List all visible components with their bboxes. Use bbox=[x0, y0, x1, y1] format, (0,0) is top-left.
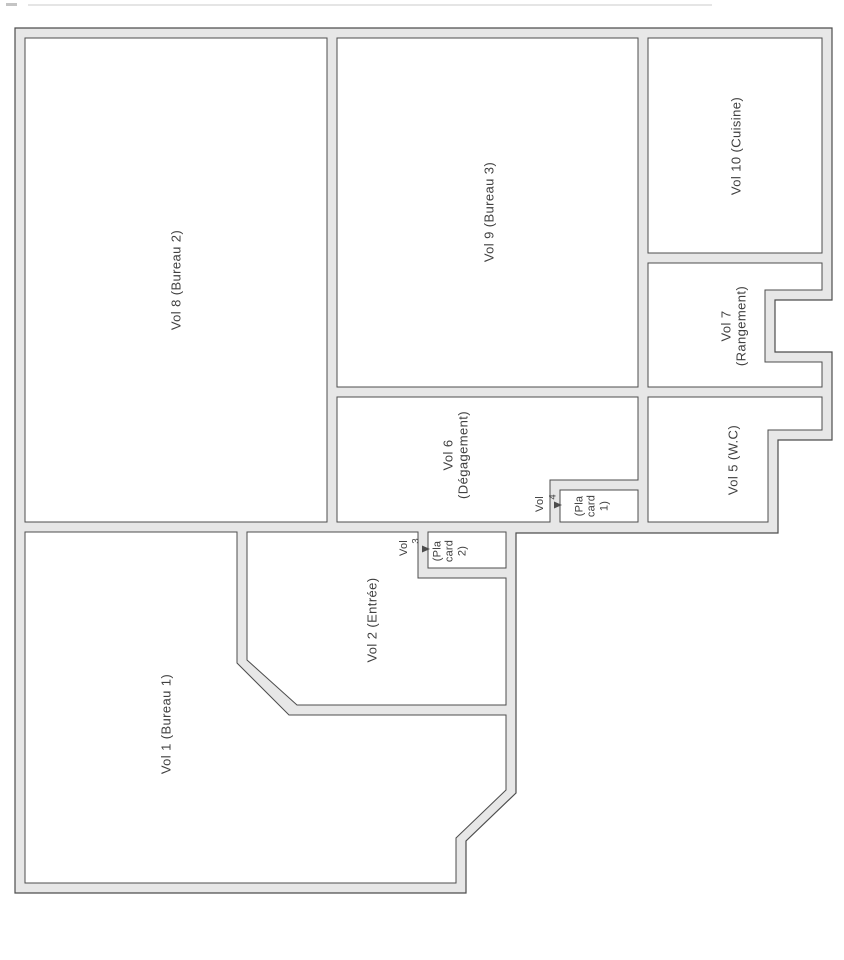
vol3-callout-number: 3 bbox=[410, 538, 421, 543]
room-label-vol1: Vol 1 (Bureau 1) bbox=[158, 674, 173, 774]
placard1-box-label: (Pla card 1) bbox=[574, 495, 611, 517]
room-label-vol9: Vol 9 (Bureau 3) bbox=[481, 162, 496, 262]
vol4-callout-prefix: Vol bbox=[534, 496, 546, 512]
floor-plan-drawing bbox=[0, 0, 844, 960]
floor-plan-canvas: Vol 8 (Bureau 2) Vol 9 (Bureau 3) Vol 10… bbox=[0, 0, 844, 960]
room-label-vol6: Vol 6 (Dégagement) bbox=[441, 411, 472, 499]
vol4-callout-number: 4 bbox=[547, 494, 558, 499]
room-label-vol7: Vol 7 (Rangement) bbox=[719, 271, 750, 381]
placard2-box-label: (Pla card 2) bbox=[432, 540, 469, 562]
vol3-callout-prefix: Vol bbox=[398, 540, 410, 556]
room-label-vol2: Vol 2 (Entrée) bbox=[364, 577, 379, 662]
room-label-vol8: Vol 8 (Bureau 2) bbox=[168, 230, 183, 330]
room-label-vol5: Vol 5 (W.C) bbox=[725, 425, 740, 495]
room-label-vol10: Vol 10 (Cuisine) bbox=[728, 97, 743, 195]
